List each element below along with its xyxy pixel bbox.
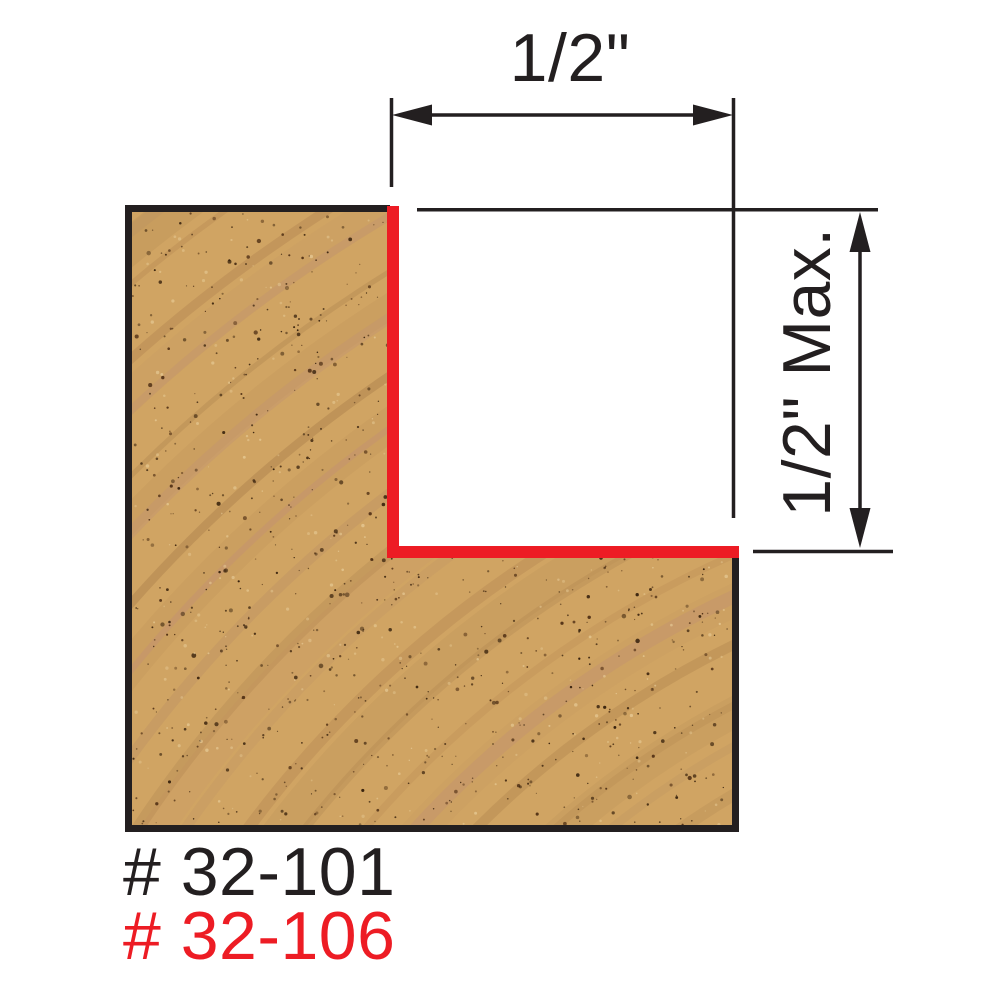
depth-arrowhead-top bbox=[850, 212, 871, 252]
part-number-red: # 32-106 bbox=[123, 902, 395, 970]
depth-arrowhead-bottom bbox=[850, 508, 871, 548]
block-outline-bottom bbox=[125, 825, 739, 832]
block-outline-top bbox=[125, 205, 390, 212]
cut-edges bbox=[387, 206, 739, 558]
cut-edge-vertical bbox=[387, 206, 399, 558]
width-arrowhead-left bbox=[392, 105, 432, 126]
block-outline-left bbox=[125, 205, 132, 832]
block-outline-right bbox=[732, 554, 739, 832]
rabbet-cut-diagram: 1/2" 1/2" Max. # 32-101 # 32-106 bbox=[0, 0, 1000, 1000]
depth-dimension-label: 1/2" Max. bbox=[773, 227, 841, 516]
width-dimension-label: 1/2" bbox=[510, 24, 631, 92]
cut-edge-horizontal bbox=[387, 546, 739, 558]
part-number-black: # 32-101 bbox=[123, 838, 395, 906]
width-arrowhead-right bbox=[693, 105, 733, 126]
